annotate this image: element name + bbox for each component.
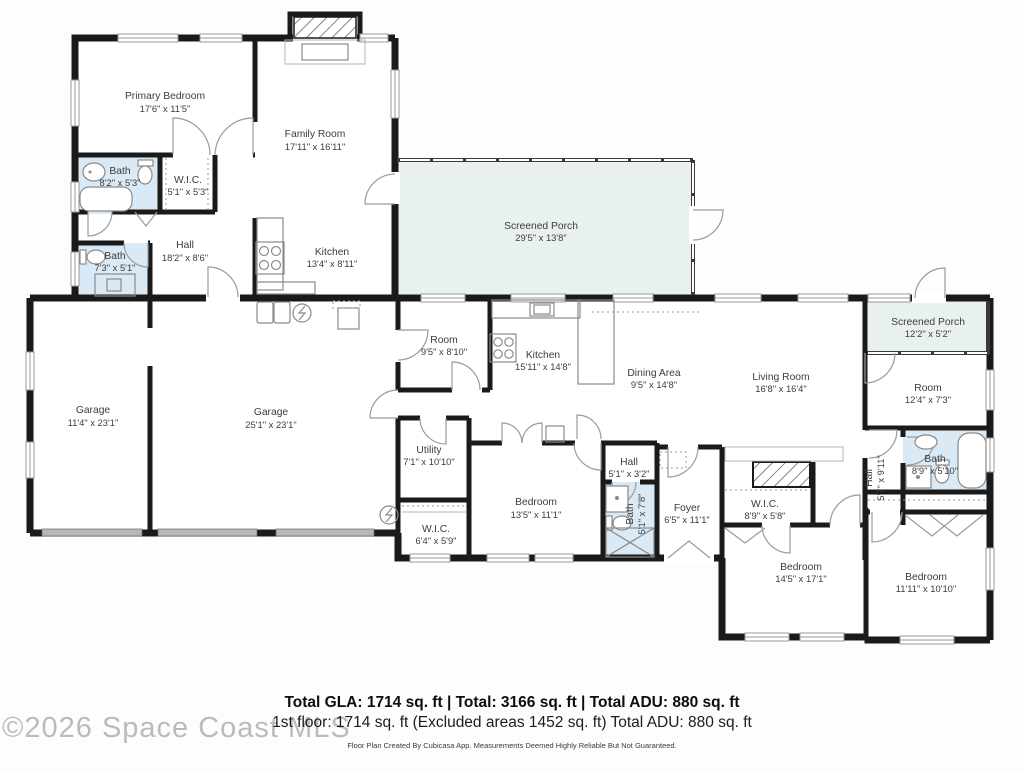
room-label-family-room: Family Room bbox=[285, 129, 346, 140]
room-label-garage-2: Garage bbox=[254, 407, 289, 418]
room-label-hall-2: Hall bbox=[620, 457, 638, 468]
svg-text:5'1" x 7'8": 5'1" x 7'8" bbox=[636, 494, 647, 535]
room-label-wic-2: W.I.C. bbox=[751, 499, 779, 510]
svg-text:14'5" x 17'1": 14'5" x 17'1" bbox=[775, 573, 826, 584]
room-label-bedroom-3: Bedroom bbox=[905, 572, 947, 583]
room-label-garage-1: Garage bbox=[76, 405, 111, 416]
svg-text:5'1" x 3'2": 5'1" x 3'2" bbox=[609, 468, 650, 479]
svg-text:29'5" x 13'8": 29'5" x 13'8" bbox=[515, 232, 566, 243]
room-label-screened-porch-2: Screened Porch bbox=[891, 317, 965, 328]
toilet-icon bbox=[80, 250, 86, 264]
room-label-screened-porch-1: Screened Porch bbox=[504, 221, 578, 232]
svg-text:17'6" x 11'5": 17'6" x 11'5" bbox=[140, 103, 191, 114]
svg-text:17'11" x 16'11": 17'11" x 16'11" bbox=[285, 141, 345, 152]
bathtub-icon bbox=[80, 187, 132, 211]
svg-text:5'1" x 5'3": 5'1" x 5'3" bbox=[168, 186, 209, 197]
svg-text:16'8" x 16'4": 16'8" x 16'4" bbox=[755, 383, 806, 394]
chimney bbox=[294, 17, 356, 38]
room-label-room-1: Room bbox=[430, 335, 457, 346]
summary-disclaimer: Floor Plan Created By Cubicasa App. Meas… bbox=[0, 741, 1024, 750]
svg-text:11'4" x 23'1": 11'4" x 23'1" bbox=[68, 417, 119, 428]
room-label-kitchen-1: Kitchen bbox=[315, 247, 350, 258]
room-label-kitchen-2: Kitchen bbox=[526, 350, 561, 361]
svg-text:9'5" x 8'10": 9'5" x 8'10" bbox=[421, 346, 467, 357]
summary-totals: Total GLA: 1714 sq. ft | Total: 3166 sq.… bbox=[0, 694, 1024, 712]
room-label-dining-area: Dining Area bbox=[627, 368, 681, 379]
svg-text:12'2" x 5'2": 12'2" x 5'2" bbox=[905, 328, 951, 339]
svg-text:7'1" x 10'10": 7'1" x 10'10" bbox=[403, 456, 454, 467]
washer-dryer-icon bbox=[257, 302, 273, 323]
room-label-utility: Utility bbox=[416, 445, 442, 456]
room-label-foyer: Foyer bbox=[674, 503, 701, 514]
room-label-primary-bedroom: Primary Bedroom bbox=[125, 91, 205, 102]
svg-text:5'7" x 9'11": 5'7" x 9'11" bbox=[875, 455, 886, 501]
attic-stairs-icon bbox=[753, 462, 810, 487]
summary-first-floor: 1st floor: 1714 sq. ft (Excluded areas 1… bbox=[0, 714, 1024, 732]
room-label-bath-2: Bath bbox=[104, 251, 125, 262]
floor-plan-svg: Primary Bedroom 17'6" x 11'5" Family Roo… bbox=[0, 0, 1024, 768]
svg-text:Bath: Bath bbox=[625, 503, 636, 524]
svg-text:9'5" x 14'8": 9'5" x 14'8" bbox=[631, 379, 677, 390]
toilet-icon bbox=[138, 160, 153, 166]
svg-text:8'9" x 5'8": 8'9" x 5'8" bbox=[745, 510, 786, 521]
svg-text:7'3" x 5'1": 7'3" x 5'1" bbox=[95, 262, 136, 273]
area-summary: Total GLA: 1714 sq. ft | Total: 3166 sq.… bbox=[0, 694, 1024, 750]
room-label-bedroom-2: Bedroom bbox=[780, 562, 822, 573]
svg-text:Hall: Hall bbox=[864, 469, 875, 487]
svg-text:25'1" x 23'1": 25'1" x 23'1" bbox=[245, 419, 296, 430]
svg-text:18'2" x 8'6": 18'2" x 8'6" bbox=[162, 252, 208, 263]
svg-text:6'5" x 11'1": 6'5" x 11'1" bbox=[664, 514, 710, 525]
room-label-living-room: Living Room bbox=[752, 372, 809, 383]
svg-text:12'4" x 7'3": 12'4" x 7'3" bbox=[905, 394, 951, 405]
room-label-wic-3: W.I.C. bbox=[422, 524, 450, 535]
room-label-hall-1: Hall bbox=[176, 240, 194, 251]
bathtub-icon bbox=[958, 433, 986, 488]
room-label-room-2: Room bbox=[914, 383, 941, 394]
room-label-bath-4: Bath bbox=[924, 454, 945, 465]
svg-text:15'11" x 14'8": 15'11" x 14'8" bbox=[515, 361, 571, 372]
svg-text:8'2" x 5'3": 8'2" x 5'3" bbox=[100, 177, 141, 188]
water-heater-icon bbox=[338, 308, 359, 329]
room-label-wic-1: W.I.C. bbox=[174, 175, 202, 186]
svg-text:8'9" x 5'10": 8'9" x 5'10" bbox=[912, 465, 958, 476]
room-label-bath-1: Bath bbox=[109, 166, 130, 177]
svg-text:13'4" x 8'11": 13'4" x 8'11" bbox=[307, 258, 358, 269]
svg-text:6'4" x 5'9": 6'4" x 5'9" bbox=[416, 535, 457, 546]
garage-doors bbox=[42, 529, 374, 536]
sink-icon bbox=[915, 435, 937, 449]
svg-text:13'5" x 11'1": 13'5" x 11'1" bbox=[511, 509, 562, 520]
room-label-bedroom-1: Bedroom bbox=[515, 497, 557, 508]
svg-text:11'11" x 10'10": 11'11" x 10'10" bbox=[896, 583, 956, 594]
